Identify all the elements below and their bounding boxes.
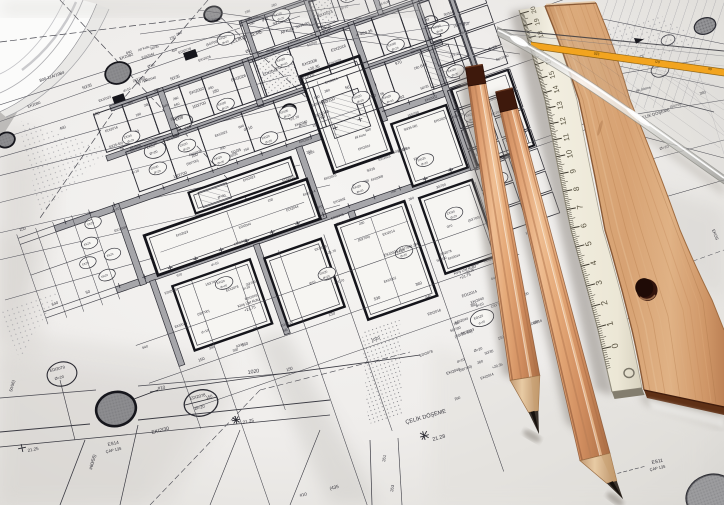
svg-text:13: 13 [555, 101, 565, 111]
svg-text:0ZI: 0ZI [655, 59, 660, 64]
svg-text:120: 120 [594, 51, 600, 56]
svg-text:12: 12 [558, 116, 568, 126]
svg-text:06: 06 [708, 66, 712, 71]
svg-text:11: 11 [561, 133, 571, 142]
